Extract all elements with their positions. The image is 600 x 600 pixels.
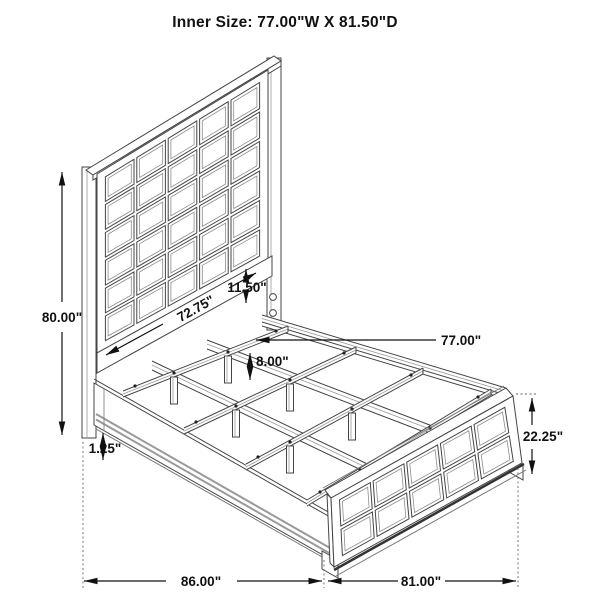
screw-dot: [133, 384, 136, 387]
side-rail-bottom-trim: [96, 429, 331, 562]
dim-width-label: 81.00": [401, 574, 441, 589]
support-leg: [233, 410, 240, 437]
bed-frame-diagram: Inner Size: 77.00"W X 81.50"D: [0, 0, 600, 600]
support-leg: [171, 377, 178, 404]
dim-height-label: 80.00": [42, 310, 82, 325]
screw-dot: [288, 440, 291, 443]
dim-leg-height-label: 8.00": [256, 354, 289, 369]
screw-dot: [172, 371, 175, 374]
diagram-page: Inner Size: 77.00"W X 81.50"D: [0, 0, 600, 600]
dim-footboard-height-label: 22.25": [523, 429, 563, 444]
screw-dot: [476, 395, 479, 398]
support-leg: [287, 446, 294, 473]
rail-bracket-hole: [270, 294, 277, 301]
dim-clearance-label: 11.50": [227, 280, 266, 295]
page-title: Inner Size: 77.00"W X 81.50"D: [172, 14, 398, 31]
screw-dot: [274, 329, 277, 332]
center-rail-edge: [207, 340, 448, 432]
rail-bracket-hole: [270, 310, 277, 317]
screw-dot: [409, 373, 412, 376]
screw-dot: [234, 404, 237, 407]
support-leg: [225, 356, 232, 383]
headboard-right-leg: [267, 58, 281, 330]
screw-dot: [256, 455, 259, 458]
dim-depth-label: 86.00": [181, 574, 221, 589]
screw-dot: [342, 351, 345, 354]
support-leg: [349, 413, 356, 440]
far-side-rail: [262, 315, 506, 399]
dim-inner-width-label: 77.00": [441, 333, 481, 348]
screw-dot: [288, 378, 291, 381]
support-leg: [287, 384, 294, 411]
side-rail: [94, 379, 331, 562]
screw-dot: [226, 350, 229, 353]
screw-dot: [194, 420, 197, 423]
screw-dot: [350, 407, 353, 410]
dim-trim-label: 1.25": [89, 441, 122, 456]
screw-dot: [318, 490, 321, 493]
far-rail-body: [262, 315, 506, 399]
